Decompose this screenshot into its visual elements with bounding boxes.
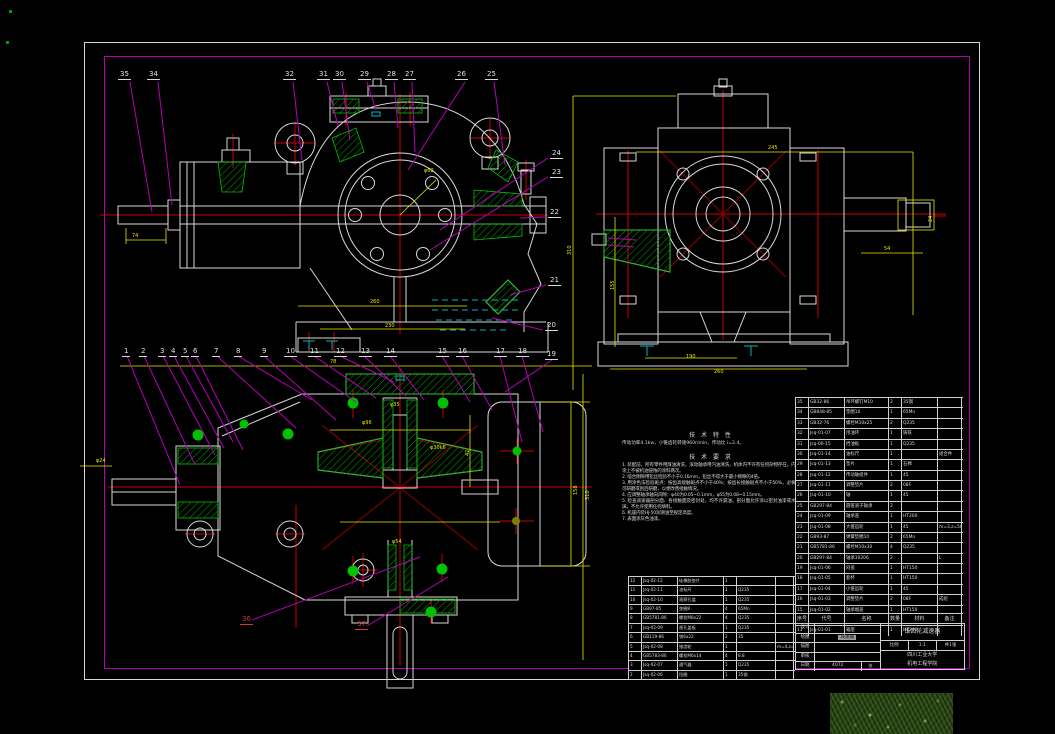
bom-code: Jsq-01-13 <box>808 460 844 469</box>
bom-qty: 1 <box>888 512 901 521</box>
view-top-section <box>112 374 586 688</box>
bom-code: Jsq-01-04 <box>808 585 844 594</box>
callout-number: 35 <box>118 71 131 80</box>
bom-code: Jsq-01-09 <box>808 512 844 521</box>
bom-no: 23 <box>795 523 808 532</box>
org-line1: 四川工业大学 <box>881 651 965 660</box>
dimension-label: φ35 <box>390 403 400 408</box>
bom-note: 成组 <box>937 595 962 604</box>
bom-no: 4 <box>628 652 641 660</box>
callout-number: 9 <box>260 348 268 357</box>
bom-material: 65Mn <box>736 605 775 613</box>
bolt-dots <box>193 398 522 618</box>
callout-number: 3 <box>158 348 166 357</box>
bom-no: 34 <box>795 408 808 417</box>
bom-qty: 1 <box>723 577 736 585</box>
bom-material: 08F <box>901 595 937 604</box>
bom-code: Jsq-02-09 <box>641 624 677 632</box>
bom-material: 65Mn <box>901 408 937 417</box>
callout-number: 20 <box>545 322 558 331</box>
table-row: 24 Jsq-01-09 轴承盖 1 HT200 <box>795 511 963 521</box>
bom-qty: 1 <box>888 429 901 438</box>
bom-note <box>775 605 794 613</box>
bom-note <box>937 564 962 573</box>
callout-number: 28 <box>385 71 398 80</box>
bom-material: 铸铁 <box>901 429 937 438</box>
table-row: 7 Jsq-02-09 视孔盖板 1 Q235 <box>628 623 795 632</box>
bom-name: 轴 <box>844 491 888 500</box>
bom-code: Jsq-01-03 <box>808 595 844 604</box>
bom-code: Jsq-02-11 <box>641 586 677 594</box>
bom-name: 甩油环 <box>844 429 888 438</box>
bom-material: 45 <box>901 585 937 594</box>
bom-qty: 1 <box>888 523 901 532</box>
bom-note <box>937 460 962 469</box>
bom-name: 硅橡胶垫片 <box>677 577 723 585</box>
table-row: 9 GB97-85 垫圈8 4 65Mn <box>628 604 795 613</box>
bom-name: 闷盖 <box>844 564 888 573</box>
callout-number: 29 <box>358 71 371 80</box>
bom-name: 套杯 <box>844 574 888 583</box>
bom-name: 螺栓M10x30 <box>844 543 888 552</box>
bom-code: GB5781-86 <box>641 614 677 622</box>
bom-qty: 1 <box>723 671 736 679</box>
table-row: 10 Jsq-02-10 观察孔盖 1 Q235 <box>628 595 795 604</box>
field-checker: 审核 <box>796 653 815 662</box>
bom-name: 油标尺 <box>844 450 888 459</box>
callout-number: 19 <box>545 351 558 360</box>
bom-note <box>775 633 794 641</box>
bom-qty: 2 <box>888 595 901 604</box>
bom-material: Q235 <box>736 661 775 669</box>
view-front <box>592 79 930 366</box>
callout-number: 7 <box>212 348 220 357</box>
table-row: 3 Jsq-02-07 通气器 1 Q235 <box>628 660 795 669</box>
bom-note <box>937 408 962 417</box>
table-row: 23 Jsq-01-08 大锥齿轮 1 45 m=3,z=50 <box>795 522 963 532</box>
bom-material: 35 <box>736 633 775 641</box>
tech-requirement-item: 3. 用涂色法检验斑点：按齿高接触斑点不小于40%；按齿长接触斑点不小于50%。… <box>622 481 800 493</box>
bom-code: Jsq-01-12 <box>808 471 844 480</box>
bom-qty: 1 <box>888 440 901 449</box>
bom-note: L <box>937 554 962 563</box>
bom-note: m=4,z=21 <box>775 643 794 651</box>
sheet-ext: 张 <box>861 662 880 671</box>
bom-no: 25 <box>795 502 808 511</box>
bom-qty: 1 <box>723 586 736 594</box>
bom-material: 65Mn <box>901 533 937 542</box>
table-row: 35 GB32-86 吊环螺钉M10 2 35钢 <box>795 397 963 407</box>
bom-material: Q235 <box>736 586 775 594</box>
bom-note <box>937 533 962 542</box>
title-block: 设计 绘图减速器 描图 审核 日期4072张 锥齿轮减速器 比例 1:1 共1张… <box>795 623 965 670</box>
bom-code: GB119-86 <box>641 633 677 641</box>
table-row: 22 GB93-87 弹簧垫圈10 2 65Mn <box>795 532 963 542</box>
bom-code: GB5783-86 <box>641 652 677 660</box>
bom-note <box>937 419 962 428</box>
callout-number: 37 <box>355 621 368 630</box>
callout-number: 31 <box>317 71 330 80</box>
bom-qty: 4 <box>723 652 736 660</box>
tech-requirement-item: 1. 装配前，所有零件用煤油清洗，滚动轴承用汽油清洗，机体内不许有任何杂物存在。… <box>622 463 800 475</box>
bom-no: 3 <box>628 661 641 669</box>
section-hatching <box>178 99 670 613</box>
cad-model-space: 35343231302928272625 2423222120 12345678… <box>0 0 1055 734</box>
bom-note <box>775 671 794 679</box>
table-row: 2 Jsq-02-06 挡圈 1 35钢 <box>628 670 795 679</box>
bom-no: 24 <box>795 512 808 521</box>
callout-number: 11 <box>308 348 321 357</box>
table-row: 32 Jsq-01-07 甩油环 1 铸铁 <box>795 428 963 438</box>
bom-no: 20 <box>795 554 808 563</box>
bom-qty: 1 <box>888 450 901 459</box>
bom-qty: 2 <box>888 554 901 563</box>
bom-no: 22 <box>795 533 808 542</box>
bom-no: 16 <box>795 595 808 604</box>
bom-material: Q235 <box>901 440 937 449</box>
bom-qty: 1 <box>888 408 901 417</box>
bom-name: 螺栓M8x22 <box>677 614 723 622</box>
bom-material <box>901 450 937 459</box>
bom-table-left: 12 Jsq-02-12 硅橡胶垫片 1 11 Jsq-02-11 油标尺 1 … <box>628 576 795 680</box>
bom-material: 45 <box>901 523 937 532</box>
bom-qty: 2 <box>888 419 901 428</box>
callout-number: 16 <box>456 348 469 357</box>
bom-no: 21 <box>795 543 808 552</box>
bom-name: 垫片 <box>844 460 888 469</box>
bom-note <box>775 624 794 632</box>
bom-note <box>775 596 794 604</box>
dimension-label: 260 <box>714 370 724 375</box>
tech-requirement-item: 7. 表面涂灰色油漆。 <box>622 517 800 523</box>
bom-name: 垫圈8 <box>677 605 723 613</box>
callout-number: 25 <box>485 71 498 80</box>
bom-name: 螺栓M10x25 <box>844 419 888 428</box>
bom-qty: 1 <box>888 564 901 573</box>
tech-characteristics-title: 技 术 特 性 <box>622 430 800 439</box>
bom-qty: 4 <box>888 543 901 552</box>
dimension-label: φ24 <box>96 459 106 464</box>
bom-no: 26 <box>795 491 808 500</box>
bom-material: Q235 <box>736 596 775 604</box>
dimension-label: 42 <box>466 450 471 456</box>
callout-number: 24 <box>550 150 563 159</box>
bom-note: 组合件 <box>937 450 962 459</box>
field-designer-value <box>815 624 880 633</box>
bom-material: 石棉 <box>901 460 937 469</box>
callout-number: 13 <box>359 348 372 357</box>
tech-requirements-title: 技 术 要 求 <box>622 452 800 461</box>
bom-material <box>736 643 775 651</box>
dimension-label: 74 <box>132 234 138 239</box>
table-row: 20 GB297-84 轴承30206 2 L <box>795 553 963 563</box>
title-block-right: 锥齿轮减速器 比例 1:1 共1张 四川工业大学 机电工程学院 <box>881 624 965 669</box>
bom-qty: 4 <box>723 614 736 622</box>
bom-note <box>937 471 962 480</box>
table-row: 4 GB5783-86 螺栓M6x14 4 8.8 <box>628 651 795 660</box>
scale-value: 1:1 <box>909 641 937 650</box>
bom-note <box>775 661 794 669</box>
bom-name: 轴承30206 <box>844 554 888 563</box>
bom-material: HT200 <box>901 512 937 521</box>
bom-name: 通气器 <box>677 661 723 669</box>
table-row: 19 Jsq-01-06 闷盖 1 HT150 <box>795 563 963 573</box>
bom-no: 18 <box>795 574 808 583</box>
callout-number: 27 <box>403 71 416 80</box>
table-row: 31 Jsq-00-15 挡油板 1 Q235 <box>795 439 963 449</box>
callout-number: 1 <box>122 348 130 357</box>
bom-qty: 1 <box>888 491 901 500</box>
dimension-label: 260 <box>370 300 380 305</box>
bom-no: 10 <box>628 596 641 604</box>
bom-no: 11 <box>628 586 641 594</box>
callout-number: 2 <box>139 348 147 357</box>
bom-no: 7 <box>628 624 641 632</box>
bom-name: 圆锥滚子轴承 <box>844 502 888 511</box>
callout-number: 4 <box>169 348 177 357</box>
bom-material: 8.8 <box>736 652 775 660</box>
callout-number: 32 <box>283 71 296 80</box>
table-row: 25 GB297-84 圆锥滚子轴承 2 <box>795 501 963 511</box>
callout-number: 18 <box>516 348 529 357</box>
field-checker-value <box>815 653 880 662</box>
bom-note <box>937 502 962 511</box>
bom-no: 33 <box>795 419 808 428</box>
bom-name: 挡油板 <box>844 440 888 449</box>
table-row: 29 Jsq-01-13 垫片 1 石棉 <box>795 459 963 469</box>
table-row: 17 Jsq-01-04 小锥齿轮 1 45 <box>795 584 963 594</box>
title-block-left: 设计 绘图减速器 描图 审核 日期4072张 <box>796 624 881 669</box>
table-row: 16 Jsq-01-03 调整垫片 2 08F 成组 <box>795 594 963 604</box>
bom-material <box>736 577 775 585</box>
bom-material: 35钢 <box>901 398 937 407</box>
table-row: 33 GB32-76 螺栓M10x25 2 Q235 <box>795 418 963 428</box>
table-row: 28 Jsq-01-12 传动轴组件 1 45 <box>795 470 963 480</box>
table-row: 5 Jsq-02-08 锥齿轮 1 m=4,z=21 <box>628 642 795 651</box>
scale-label: 比例 <box>881 641 909 650</box>
dimension-label: 54 <box>884 247 890 252</box>
bom-note <box>937 585 962 594</box>
bom-no: 19 <box>795 564 808 573</box>
callout-number: 26 <box>455 71 468 80</box>
bom-code: GB848-85 <box>808 408 844 417</box>
bom-note <box>937 398 962 407</box>
callout-number: 30 <box>333 71 346 80</box>
bom-code: Jsq-01-07 <box>808 429 844 438</box>
table-row: 21 GB5781-86 螺栓M10x30 4 Q235 <box>795 542 963 552</box>
dimension-label: φ30k6 <box>430 446 446 451</box>
bom-note <box>775 614 794 622</box>
bom-name: 轴承盖 <box>844 512 888 521</box>
bom-code: Jsq-02-07 <box>641 661 677 669</box>
bom-code: Jsq-01-05 <box>808 574 844 583</box>
bom-qty: 2 <box>888 398 901 407</box>
callout-number: 6 <box>191 348 199 357</box>
org-line2: 机电工程学院 <box>881 660 965 669</box>
bom-qty: 4 <box>723 605 736 613</box>
bom-material: Q235 <box>901 419 937 428</box>
bom-name: 视孔盖板 <box>677 624 723 632</box>
sheet-count: 共1张 <box>937 641 964 650</box>
dimension-label: 230 <box>385 324 395 329</box>
tech-characteristics-line: 传动功率4.1kw，小锥齿轮转速960r/min，传动比 i=2.4。 <box>622 441 800 447</box>
bom-code: GB297-84 <box>808 502 844 511</box>
dimension-label: φ96 <box>362 421 372 426</box>
bom-code: Jsq-02-12 <box>641 577 677 585</box>
field-designer: 设计 <box>796 624 815 633</box>
bom-qty: 1 <box>888 574 901 583</box>
bom-material: Q235 <box>901 543 937 552</box>
bom-code: Jsq-00-15 <box>808 440 844 449</box>
bom-no: 9 <box>628 605 641 613</box>
bom-code: Jsq-02-08 <box>641 643 677 651</box>
bom-note: m=3,z=50 <box>937 523 962 532</box>
bom-name: 大锥齿轮 <box>844 523 888 532</box>
bom-material: 08F <box>901 481 937 490</box>
bom-no: 35 <box>795 398 808 407</box>
bom-qty: 2 <box>888 533 901 542</box>
bom-no: 29 <box>795 460 808 469</box>
grass-photo-thumbnail <box>830 693 953 734</box>
callout-number: 5 <box>181 348 189 357</box>
bom-name: 传动轴组件 <box>844 471 888 480</box>
bom-name: 螺栓M6x14 <box>677 652 723 660</box>
field-drafter: 绘图 <box>796 634 815 643</box>
bom-material <box>901 554 937 563</box>
bom-name: 吊环螺钉M10 <box>844 398 888 407</box>
drawing-title: 锥齿轮减速器 <box>881 624 965 641</box>
callout-number: 17 <box>494 348 507 357</box>
callout-number: 12 <box>334 348 347 357</box>
bom-code: GB5781-86 <box>808 543 844 552</box>
organization: 四川工业大学 机电工程学院 <box>881 651 965 669</box>
bom-qty: 1 <box>723 661 736 669</box>
bom-name: 挡圈 <box>677 671 723 679</box>
callout-number: 22 <box>548 209 561 218</box>
bom-no: 17 <box>795 585 808 594</box>
highlighted-part-name[interactable]: 减速器 <box>838 635 856 640</box>
bom-note <box>937 512 962 521</box>
bom-name: 调整垫片 <box>844 595 888 604</box>
drawing-number: 4072 <box>815 662 861 671</box>
table-row: 11 Jsq-02-11 油标尺 1 Q235 <box>628 585 795 594</box>
bom-code: GB97-85 <box>641 605 677 613</box>
bom-qty: 2 <box>888 502 901 511</box>
bom-note <box>775 586 794 594</box>
bom-code: Jsq-01-08 <box>808 523 844 532</box>
bom-material: HT150 <box>901 574 937 583</box>
bom-no: 31 <box>795 440 808 449</box>
callout-number: 34 <box>147 71 160 80</box>
bom-qty: 1 <box>888 471 901 480</box>
dimension-label: φ54 <box>392 540 402 545</box>
bom-note <box>937 429 962 438</box>
bom-no: 12 <box>628 577 641 585</box>
bom-material: Q235 <box>736 614 775 622</box>
bom-note <box>937 543 962 552</box>
callout-number: 10 <box>284 348 297 357</box>
bom-material: 45 <box>901 491 937 500</box>
bom-code: GB93-87 <box>808 533 844 542</box>
dimension-label: 24 <box>929 216 934 222</box>
bom-material: 45 <box>901 471 937 480</box>
bom-name: 销6x22 <box>677 633 723 641</box>
field-date: 日期 <box>796 662 815 671</box>
table-row: 26 Jsq-01-10 轴 1 45 <box>795 490 963 500</box>
bom-name: 弹簧垫圈10 <box>844 533 888 542</box>
bom-note <box>937 491 962 500</box>
bom-code: Jsq-01-11 <box>808 481 844 490</box>
field-tracer-value <box>815 643 880 652</box>
bom-code: Jsq-01-06 <box>808 564 844 573</box>
bom-no: 32 <box>795 429 808 438</box>
technical-notes: 技 术 特 性 传动功率4.1kw，小锥齿轮转速960r/min，传动比 i=2… <box>622 430 800 523</box>
bom-name: 小锥齿轮 <box>844 585 888 594</box>
dimension-label: 190 <box>686 355 696 360</box>
table-row: 34 GB848-85 垫圈10 1 65Mn <box>795 407 963 417</box>
bom-qty: 1 <box>888 585 901 594</box>
bom-code: GB32-86 <box>808 398 844 407</box>
callout-number: 15 <box>436 348 449 357</box>
bom-note <box>775 652 794 660</box>
bom-code: GB297-84 <box>808 554 844 563</box>
bom-note <box>937 481 962 490</box>
callout-number: 21 <box>548 277 561 286</box>
bom-no: 28 <box>795 471 808 480</box>
bom-table-right: 35 GB32-86 吊环螺钉M10 2 35钢 34 GB848-85 垫圈1… <box>795 397 963 636</box>
bom-material: Q235 <box>736 624 775 632</box>
bom-qty: 1 <box>723 643 736 651</box>
bom-name: 调整垫片 <box>844 481 888 490</box>
bom-code: Jsq-02-06 <box>641 671 677 679</box>
table-row: 8 GB5781-86 螺栓M8x22 4 Q235 <box>628 613 795 622</box>
table-row: 18 Jsq-01-05 套杯 1 HT150 <box>795 573 963 583</box>
bom-note <box>937 574 962 583</box>
dimension-label: 310 <box>568 245 573 255</box>
callout-number: 23 <box>550 169 563 178</box>
bom-no: 6 <box>628 633 641 641</box>
bom-note <box>937 440 962 449</box>
callout-number: 8 <box>234 348 242 357</box>
dimension-label: φ62 <box>424 169 434 174</box>
bom-qty: 1 <box>723 596 736 604</box>
table-row: 27 Jsq-01-11 调整垫片 2 08F <box>795 480 963 490</box>
bom-name: 观察孔盖 <box>677 596 723 604</box>
bom-no: 27 <box>795 481 808 490</box>
bom-code: GB32-76 <box>808 419 844 428</box>
tech-requirements-list: 1. 装配前，所有零件用煤油清洗，滚动轴承用汽油清洗，机体内不许有任何杂物存在。… <box>622 463 800 523</box>
bom-no: 8 <box>628 614 641 622</box>
field-tracer: 描图 <box>796 643 815 652</box>
bom-material: 35钢 <box>736 671 775 679</box>
bom-code: Jsq-01-10 <box>808 491 844 500</box>
dimension-label: 158 <box>574 485 579 495</box>
bom-qty: 1 <box>723 624 736 632</box>
dimension-label: 245 <box>768 146 778 151</box>
dimension-label: 155 <box>611 280 616 290</box>
table-row: 30 Jsq-01-14 油标尺 1 组合件 <box>795 449 963 459</box>
bom-material: HT150 <box>901 564 937 573</box>
bom-qty: 2 <box>723 633 736 641</box>
table-row: 12 Jsq-02-12 硅橡胶垫片 1 <box>628 576 795 585</box>
table-row: 6 GB119-86 销6x22 2 35 <box>628 632 795 641</box>
bom-name: 锥齿轮 <box>677 643 723 651</box>
dimension-label: 78 <box>330 360 336 365</box>
bom-no: 5 <box>628 643 641 651</box>
dimension-label: 310 <box>586 490 591 500</box>
callout-number: 14 <box>384 348 397 357</box>
bom-material <box>901 502 937 511</box>
